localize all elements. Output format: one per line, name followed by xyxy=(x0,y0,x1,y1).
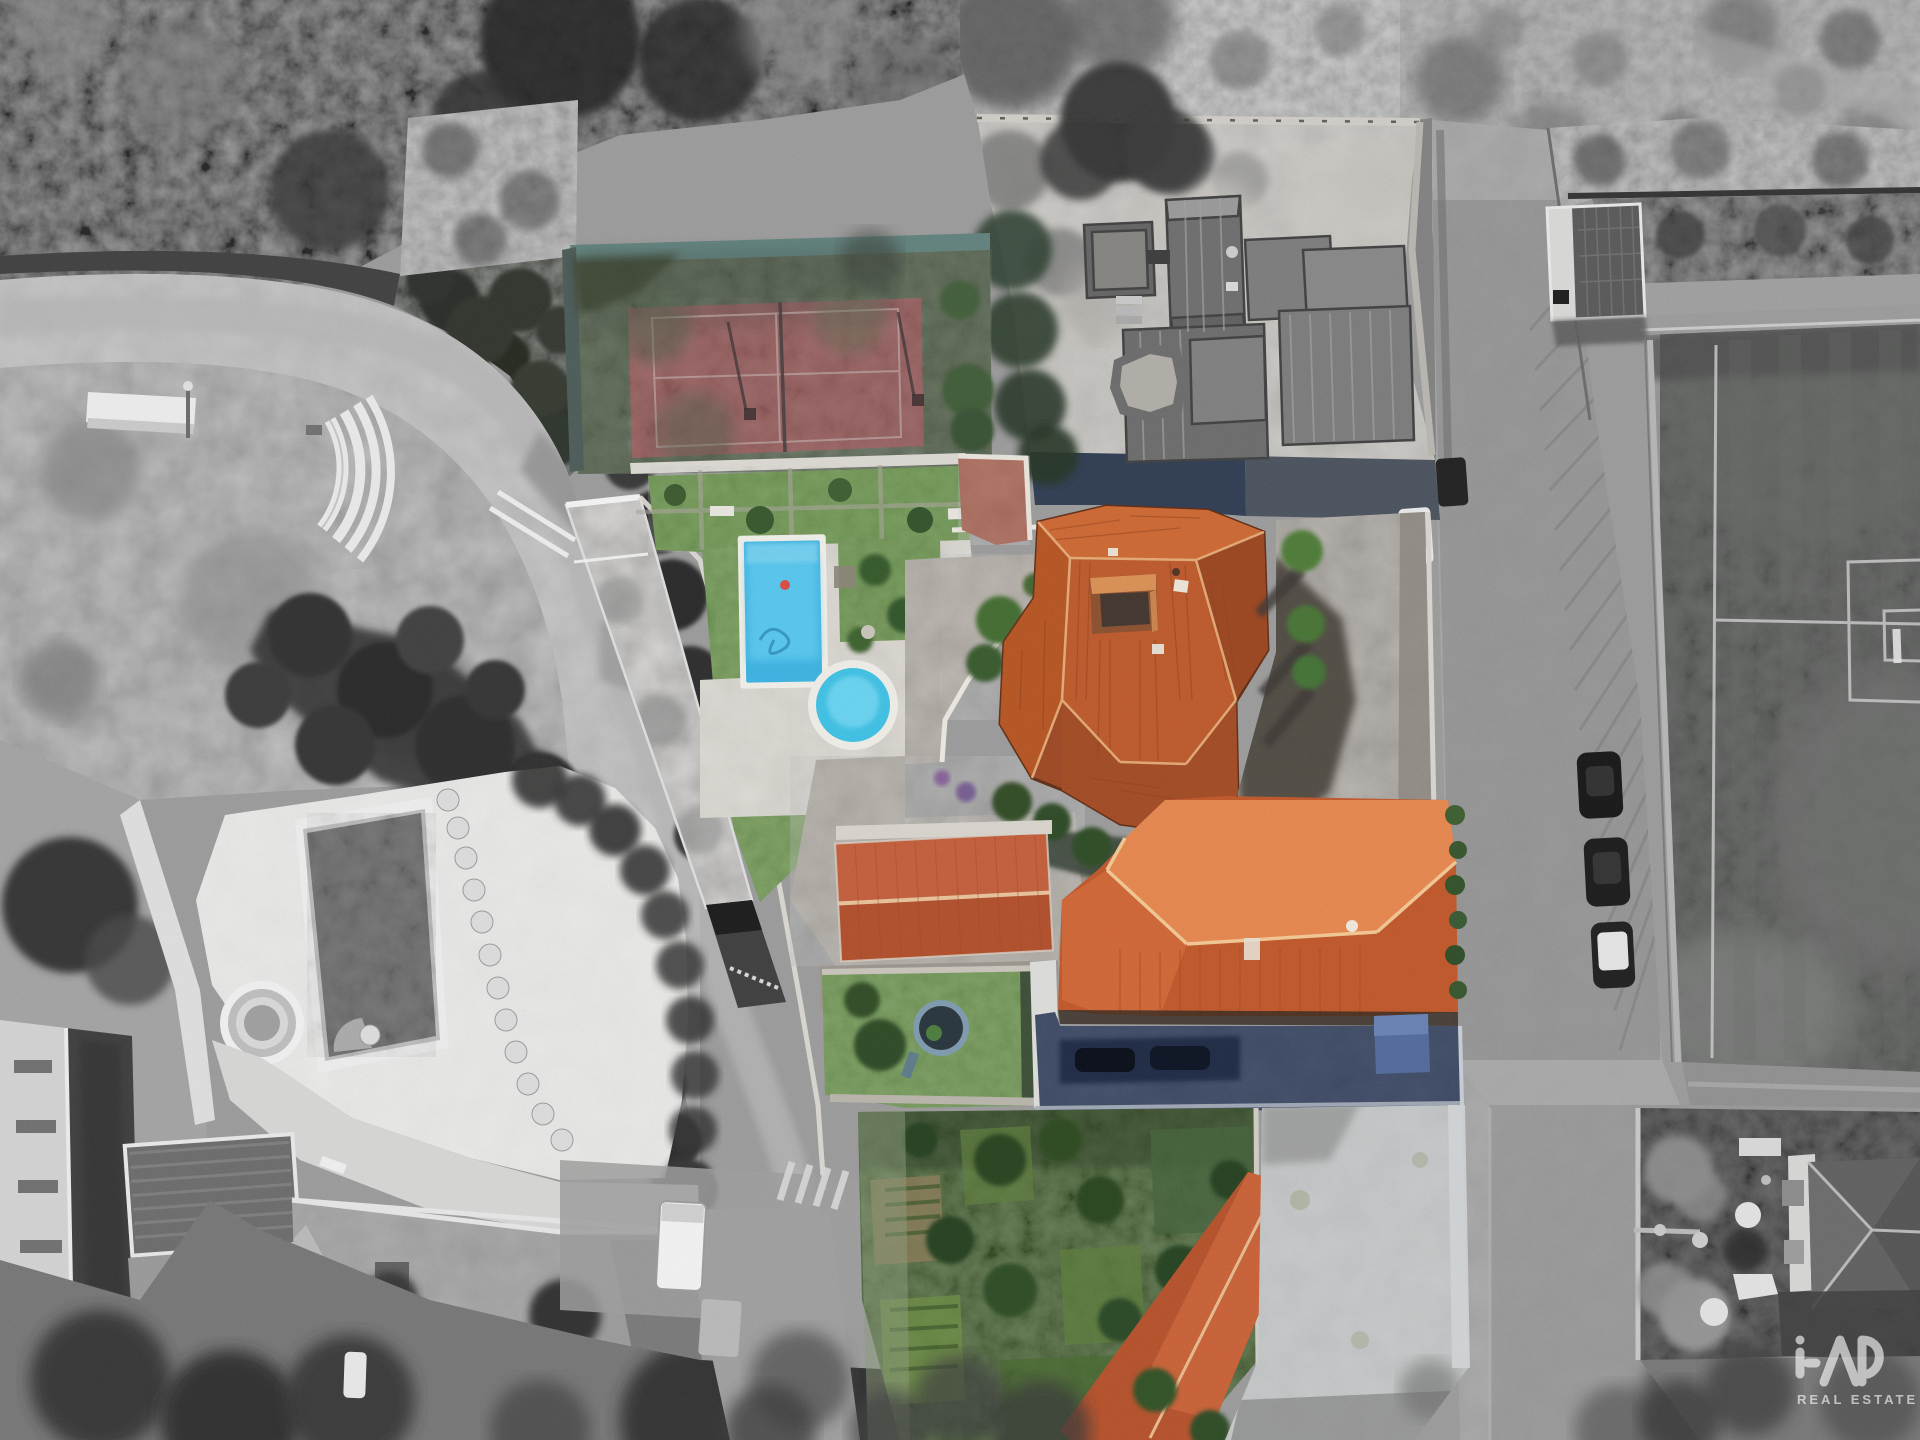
svg-text:REAL ESTATE: REAL ESTATE xyxy=(1797,1392,1918,1407)
